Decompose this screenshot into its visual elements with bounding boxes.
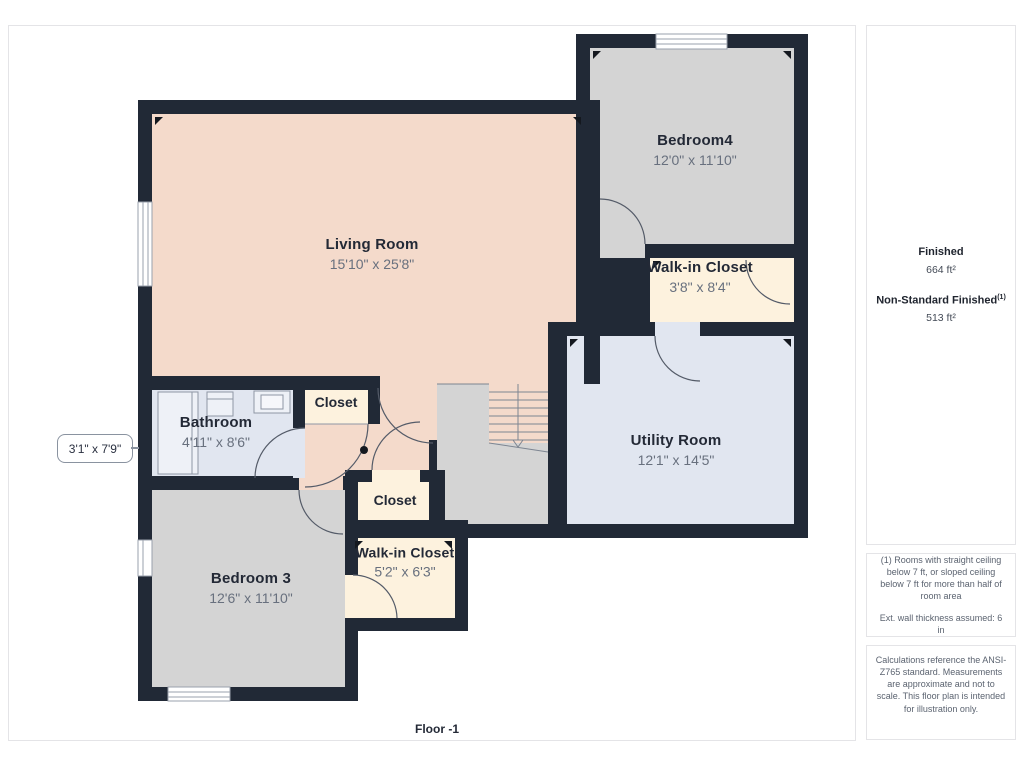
floor-label: Floor -1	[415, 722, 459, 736]
room-label-utility-room: Utility Room 12'1" x 14'5"	[631, 432, 722, 468]
dimension-callout: 3'1" x 7'9"	[57, 434, 133, 463]
callout-leader-line	[131, 447, 139, 449]
wall-thickness-note: Ext. wall thickness assumed: 6 in	[877, 612, 1005, 636]
room-label-closet-mid: Closet	[374, 492, 417, 508]
room-label-closet-top: Closet	[315, 394, 358, 410]
floor-plan-page: Living Room 15'10" x 25'8" Bedroom4 12'0…	[0, 0, 1024, 768]
room-label-bathroom: Bathroom 4'11" x 8'6"	[180, 414, 252, 450]
window-bedroom4-top	[656, 34, 727, 49]
room-label-walkin-closet-bottom: Walk-in Closet 5'2" x 6'3"	[356, 545, 455, 580]
window-bedroom3-bottom	[168, 687, 230, 701]
nonstandard-value: 513 ft²	[926, 312, 956, 324]
nonstandard-footnote-marker: (1)	[997, 294, 1006, 301]
finished-value: 664 ft²	[926, 264, 956, 276]
scan-point-dot	[360, 446, 368, 454]
nonstandard-label: Non-Standard Finished(1)	[876, 294, 1006, 307]
room-label-living-room: Living Room 15'10" x 25'8"	[325, 236, 418, 272]
ceiling-note: (1) Rooms with straight ceiling below 7 …	[877, 554, 1005, 603]
window-bedroom3-left	[138, 540, 152, 576]
window-living-left	[138, 202, 152, 286]
sidebar-areas-panel: Finished 664 ft² Non-Standard Finished(1…	[866, 25, 1016, 545]
sidebar-disclaimer-panel: Calculations reference the ANSI-Z765 sta…	[866, 645, 1016, 740]
disclaimer-text: Calculations reference the ANSI-Z765 sta…	[875, 654, 1007, 715]
room-label-walkin-closet-top: Walk-in Closet 3'8" x 8'4"	[647, 259, 753, 295]
finished-label: Finished	[918, 246, 963, 258]
room-label-bedroom4: Bedroom4 12'0" x 11'10"	[653, 132, 737, 168]
sink-icon	[207, 392, 233, 416]
room-label-bedroom3: Bedroom 3 12'6" x 11'10"	[209, 570, 293, 606]
sidebar-notes-panel: (1) Rooms with straight ceiling below 7 …	[866, 553, 1016, 637]
utility-room-floor	[567, 336, 794, 524]
